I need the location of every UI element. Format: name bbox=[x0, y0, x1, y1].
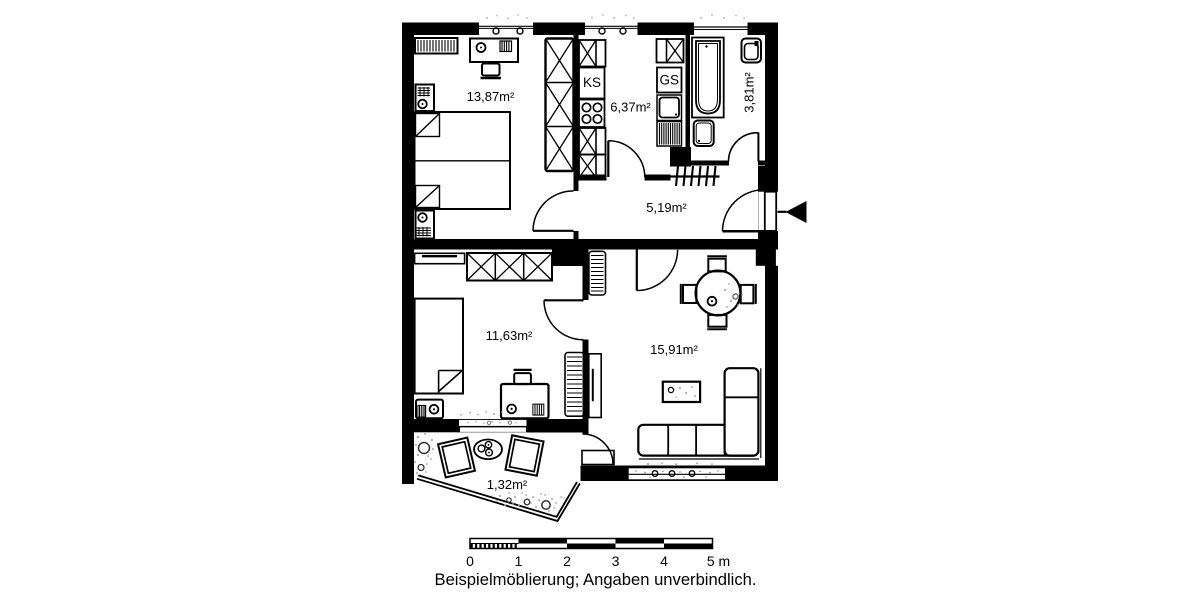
svg-text:5 m: 5 m bbox=[707, 553, 730, 569]
svg-text:0: 0 bbox=[466, 553, 474, 569]
svg-text:4: 4 bbox=[660, 553, 668, 569]
svg-text:6,37m²: 6,37m² bbox=[610, 100, 651, 115]
svg-text:2: 2 bbox=[563, 553, 571, 569]
svg-text:15,91m²: 15,91m² bbox=[650, 342, 698, 357]
svg-text:1: 1 bbox=[515, 553, 523, 569]
svg-text:Beispielmöblierung; Angaben un: Beispielmöblierung; Angaben unverbindlic… bbox=[435, 570, 757, 589]
svg-text:11,63m²: 11,63m² bbox=[486, 328, 533, 343]
svg-text:13,87m²: 13,87m² bbox=[467, 89, 515, 104]
svg-text:3: 3 bbox=[612, 553, 620, 569]
svg-text:5,19m²: 5,19m² bbox=[646, 200, 687, 215]
svg-text:GS: GS bbox=[659, 73, 679, 88]
svg-text:KS: KS bbox=[583, 75, 601, 90]
svg-text:3,81m²: 3,81m² bbox=[742, 72, 757, 113]
svg-text:1,32m²: 1,32m² bbox=[487, 477, 528, 492]
